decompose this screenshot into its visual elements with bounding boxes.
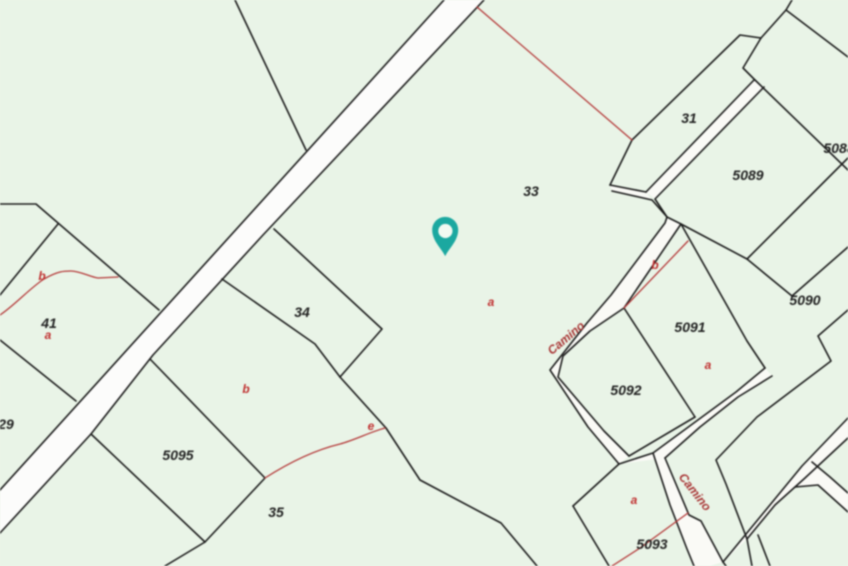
svg-text:5093: 5093 <box>636 536 667 552</box>
svg-text:33: 33 <box>523 183 539 199</box>
svg-text:b: b <box>651 258 658 272</box>
svg-text:5090: 5090 <box>789 292 820 308</box>
svg-text:a: a <box>705 358 712 372</box>
svg-text:5095: 5095 <box>162 447 193 463</box>
svg-text:5088: 5088 <box>823 140 848 156</box>
svg-text:35: 35 <box>268 504 284 520</box>
svg-text:b: b <box>38 269 45 283</box>
svg-text:a: a <box>631 493 638 507</box>
svg-text:a: a <box>45 328 52 342</box>
svg-text:a: a <box>488 295 495 309</box>
svg-text:34: 34 <box>294 304 310 320</box>
svg-text:31: 31 <box>681 110 697 126</box>
svg-text:b: b <box>242 382 249 396</box>
svg-text:5089: 5089 <box>732 167 763 183</box>
svg-text:29: 29 <box>0 416 14 432</box>
svg-text:5092: 5092 <box>610 382 641 398</box>
svg-text:e: e <box>368 419 375 433</box>
svg-text:5091: 5091 <box>674 319 705 335</box>
